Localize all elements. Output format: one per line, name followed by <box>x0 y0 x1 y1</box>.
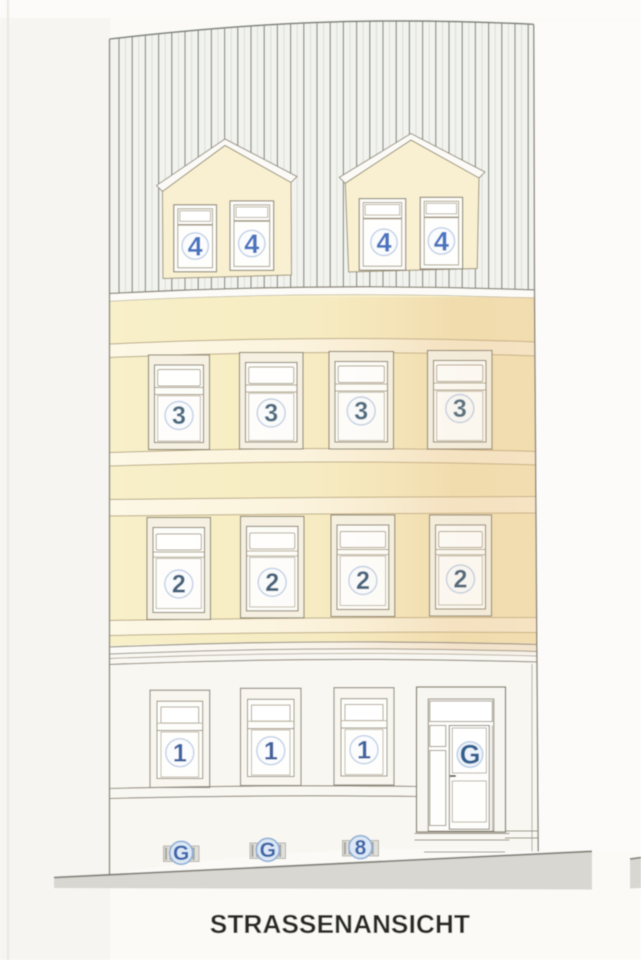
svg-text:STRASSENANSICHT: STRASSENANSICHT <box>210 909 470 939</box>
svg-text:4: 4 <box>188 231 203 261</box>
svg-text:G: G <box>460 740 481 770</box>
svg-text:4: 4 <box>434 226 449 256</box>
svg-text:1: 1 <box>173 739 187 767</box>
svg-text:1: 1 <box>264 737 278 765</box>
svg-text:4: 4 <box>376 228 391 258</box>
svg-text:G: G <box>173 842 189 865</box>
svg-text:8: 8 <box>355 837 367 860</box>
svg-text:4: 4 <box>244 229 259 259</box>
svg-text:G: G <box>260 839 276 862</box>
svg-text:1: 1 <box>357 736 371 764</box>
